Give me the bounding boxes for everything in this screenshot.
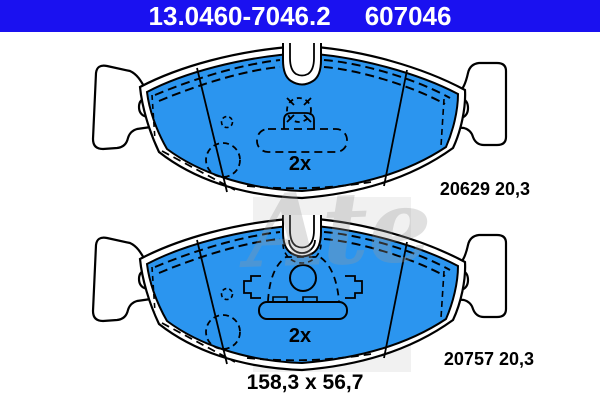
part-number-header: 13.0460-7046.2 607046 [0, 0, 600, 32]
wva-number-top: 20629 20,3 [390, 179, 530, 200]
product-image: 13.0460-7046.2 607046 [0, 0, 600, 400]
oe-part-number: 13.0460-7046.2 [149, 3, 331, 29]
quantity-label-top: 2x [270, 153, 330, 176]
quantity-label-bottom: 2x [270, 325, 330, 348]
dimensions-label: 158,3 x 56,7 [195, 371, 415, 395]
catalog-part-number: 607046 [365, 3, 452, 29]
wva-number-bottom: 20757 20,3 [394, 349, 534, 370]
retaining-notch-inner [290, 43, 314, 76]
